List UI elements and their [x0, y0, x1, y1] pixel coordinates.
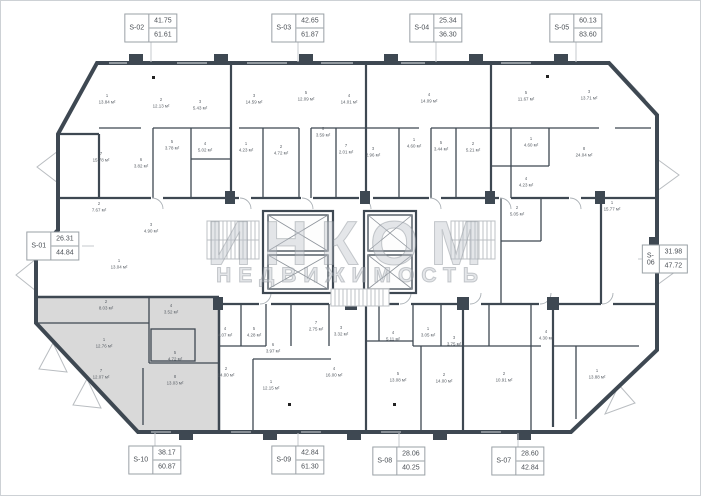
unit-id: S-04: [410, 15, 434, 42]
unit-area-living: 28.60: [516, 448, 544, 462]
unit-label-s-06: S-0631.9847.72: [642, 245, 688, 274]
unit-id: S-10: [129, 447, 153, 474]
unit-area-total: 36.30: [434, 29, 462, 42]
unit-area-living: 28.06: [397, 448, 425, 462]
unit-areas: 31.9847.72: [660, 246, 688, 273]
unit-areas: 42.8461.30: [296, 447, 324, 474]
unit-area-living: 31.98: [660, 246, 688, 260]
unit-area-living: 42.65: [296, 15, 324, 29]
unit-area-living: 41.75: [149, 15, 177, 29]
unit-areas: 38.1760.87: [153, 447, 181, 474]
unit-area-total: 42.84: [516, 462, 544, 475]
unit-label-s-03: S-0342.6561.87: [271, 14, 324, 43]
unit-area-living: 38.17: [153, 447, 181, 461]
unit-area-living: 60.13: [574, 15, 602, 29]
unit-id: S-05: [550, 15, 574, 42]
unit-label-s-09: S-0942.8461.30: [271, 446, 324, 475]
unit-area-total: 44.84: [51, 247, 79, 260]
unit-area-total: 47.72: [660, 260, 688, 273]
highlighted-apartment-fill: [37, 297, 219, 431]
unit-id: S-02: [125, 15, 149, 42]
unit-id: S-06: [643, 246, 660, 273]
unit-areas: 25.3436.30: [434, 15, 462, 42]
unit-areas: 60.1383.60: [574, 15, 602, 42]
unit-area-total: 83.60: [574, 29, 602, 42]
unit-area-total: 61.61: [149, 29, 177, 42]
unit-areas: 42.6561.87: [296, 15, 324, 42]
unit-areas: 41.7561.61: [149, 15, 177, 42]
unit-label-s-07: S-0728.6042.84: [491, 447, 544, 476]
unit-area-total: 61.30: [296, 461, 324, 474]
unit-label-s-02: S-0241.7561.61: [124, 14, 177, 43]
unit-area-living: 42.84: [296, 447, 324, 461]
unit-areas: 26.3144.84: [51, 233, 79, 260]
floor-plan-svg: [1, 1, 701, 496]
unit-area-living: 25.34: [434, 15, 462, 29]
unit-areas: 28.0640.25: [397, 448, 425, 475]
unit-id: S-08: [373, 448, 397, 475]
unit-id: S-01: [27, 233, 51, 260]
unit-label-s-04: S-0425.3436.30: [409, 14, 462, 43]
unit-id: S-03: [272, 15, 296, 42]
unit-label-s-01: S-0126.3144.84: [26, 232, 79, 261]
unit-areas: 28.6042.84: [516, 448, 544, 475]
unit-area-total: 61.87: [296, 29, 324, 42]
unit-id: S-09: [272, 447, 296, 474]
unit-area-total: 60.87: [153, 461, 181, 474]
unit-label-s-10: S-1038.1760.87: [128, 446, 181, 475]
floorplan-screenshot: ИНКОМ НЕДВИЖИМОСТЬ S-0126.3144.84S-0241.…: [0, 0, 701, 496]
unit-label-s-08: S-0828.0640.25: [372, 447, 425, 476]
unit-area-living: 26.31: [51, 233, 79, 247]
unit-id: S-07: [492, 448, 516, 475]
unit-area-total: 40.25: [397, 462, 425, 475]
unit-label-s-05: S-0560.1383.60: [549, 14, 602, 43]
